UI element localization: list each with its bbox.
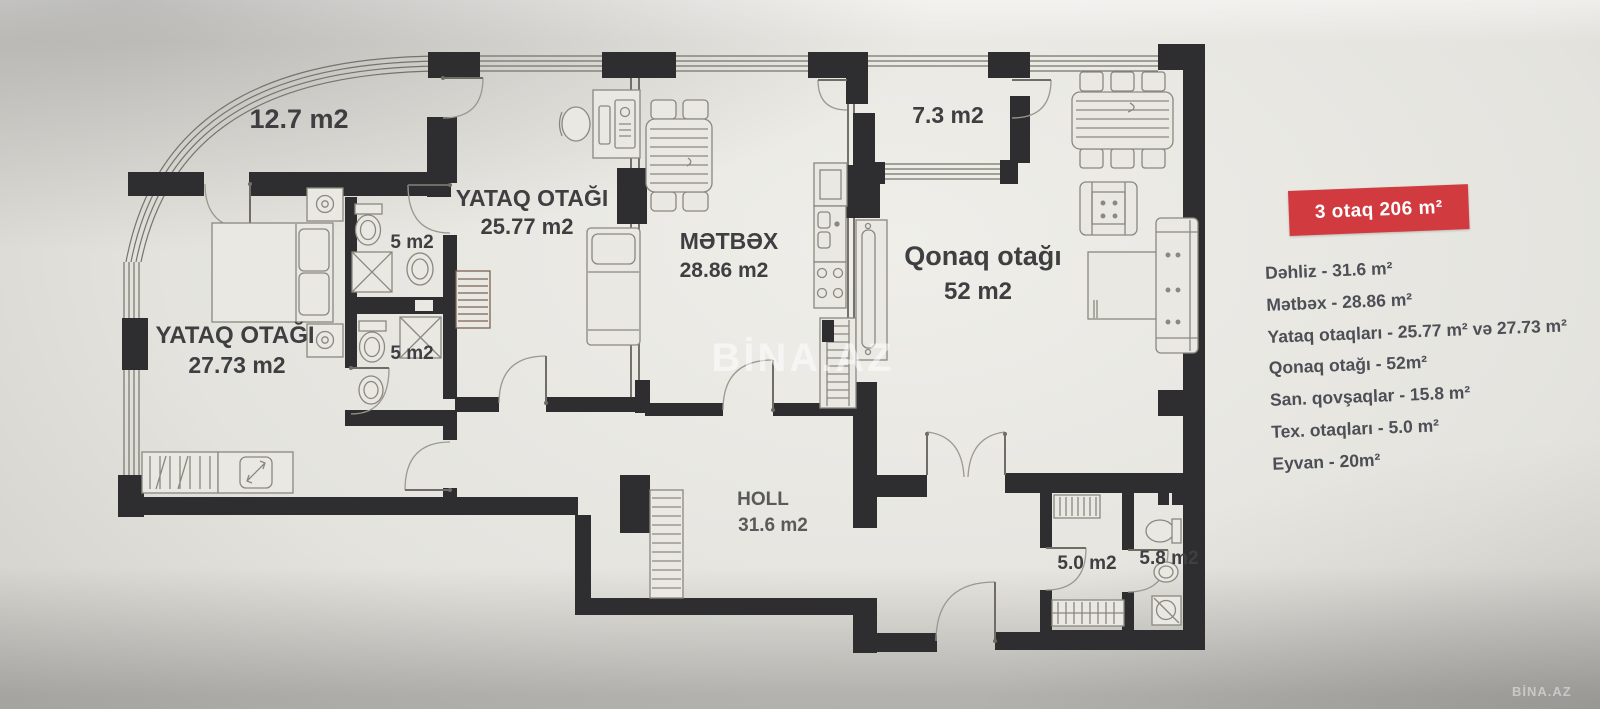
watermark-center: BİNA.AZ [703,336,903,381]
dining-table-symbol [1072,72,1173,168]
legend-items: Dəhliz - 31.6 m² Mətbəx - 28.86 m² Yataq… [1265,245,1600,480]
room-label-kitchen-name: MƏTBƏX [680,228,779,254]
room-label-bath2: 5 m2 [390,343,433,364]
armchair-symbol [1080,182,1137,235]
room-label-bedroom25-name: YATAQ OTAĞI [456,184,609,211]
legend-panel: 3 otaq 206 m² Dəhliz - 31.6 m² Mətbəx - … [1262,179,1600,480]
fridge-symbol [814,163,847,206]
kitchen-sink-symbol [814,206,846,262]
room-label-wc: 5.8 m2 [1139,548,1198,569]
room-label-bedroom27-name: YATAQ OTAĞI [155,321,314,349]
dresser-symbol [142,452,293,493]
room-label-hall-name: HOLL [737,489,789,510]
toilet-symbol [359,321,386,362]
washing-machine-symbol [1152,596,1181,625]
room-label-living-name: Qonaq otağı [904,241,1062,271]
wall-notch [415,300,433,311]
desk-chair-symbol [560,107,591,141]
room-label-eyvan-n: 7.3 m2 [912,102,984,128]
room-label-kitchen-area: 28.86 m2 [680,259,769,282]
room-label-bedroom25-area: 25.77 m2 [481,214,574,239]
closet-symbol [650,490,683,598]
room-label-bath1: 5 m2 [390,232,433,253]
wardrobe-symbol [456,271,490,328]
room-label-tex: 5.0 m2 [1057,553,1116,574]
shower-symbol [352,252,392,292]
sink-symbol [407,253,433,285]
area-badge: 3 otaq 206 m² [1288,184,1470,236]
stove-symbol [814,262,846,308]
sink-symbol [359,376,383,404]
room-label-bedroom27-area: 27.73 m2 [188,352,285,378]
floorplan-photo: 12.7 m2 YATAQ OTAĞI 25.77 m2 MƏTBƏX 28.8… [0,0,1600,709]
room-label-eyvan-nw: 12.7 m2 [249,104,348,134]
watermark-bottom-right: BİNA.AZ [1512,684,1572,699]
sofa-symbol [1156,218,1198,353]
room-label-hall-area: 31.6 m2 [738,515,808,536]
room-label-living-area: 52 m2 [944,278,1012,305]
kitchen-table-symbol [646,100,712,211]
desk-symbol [593,90,640,158]
tv-stand-symbol [1088,252,1159,319]
single-bed-symbol [587,228,640,345]
double-bed-symbol [212,223,333,322]
toilet-symbol [355,204,382,245]
toilet-symbol [1146,519,1181,543]
